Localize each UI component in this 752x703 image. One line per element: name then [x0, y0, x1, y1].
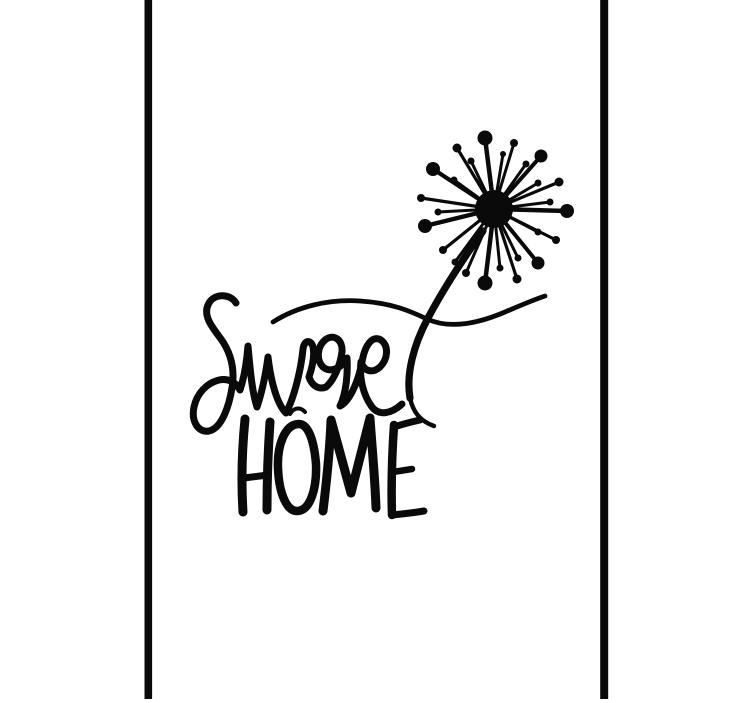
dandelion-seed-dot — [560, 204, 574, 218]
dandelion-flower-icon — [409, 131, 574, 427]
dandelion-seed-dot — [417, 194, 425, 202]
dandelion-core — [475, 190, 513, 228]
dandelion-seed-dot — [435, 209, 442, 216]
letter-h-left-stroke — [242, 419, 245, 512]
dandelion-seed-dot — [552, 236, 560, 244]
sweet-script-lettering — [193, 296, 402, 431]
dandelion-seed-dot — [532, 257, 545, 270]
dandelion-seed-dot — [500, 151, 506, 157]
letter-o-accent-mark — [290, 408, 305, 414]
letter-o-stroke — [278, 424, 316, 511]
letter-e-middle-arm — [393, 469, 412, 472]
dandelion-seed-dot — [555, 178, 564, 187]
dandelion-seed-dot — [453, 144, 462, 153]
poster-canvas: sweet HOME — [0, 0, 752, 703]
right-border-line — [600, 0, 608, 699]
dandelion-seed-dot — [523, 161, 530, 168]
dandelion-seed-dot — [515, 255, 522, 262]
dandelion-seed-dot — [426, 162, 440, 176]
dandelion-seed-dot — [451, 177, 458, 184]
sweet-word-path — [193, 296, 402, 431]
letter-h-right-stroke — [267, 422, 270, 510]
dandelion-seed-dot — [513, 275, 522, 284]
dandelion-seed-dot — [510, 139, 518, 147]
dandelion-seed-dot — [535, 229, 542, 236]
dandelion-seed-dot — [535, 150, 548, 163]
dandelion-seed-dot — [535, 180, 542, 187]
letter-m-stroke — [323, 418, 376, 511]
left-border-line — [145, 0, 153, 699]
dandelion-seed-dot — [468, 158, 475, 165]
dandelion-seed-dot — [462, 269, 470, 277]
letter-h-crossbar — [244, 475, 268, 478]
dandelion-seed-dot — [478, 276, 493, 291]
letter-e-top-arm — [394, 420, 420, 427]
poster-graphic — [0, 0, 752, 703]
dandelion-seed-dot — [439, 246, 447, 254]
home-lettering — [242, 408, 424, 515]
dandelion-seed-dot — [547, 199, 554, 206]
t-crossbar-flourish — [273, 296, 545, 324]
dandelion-seed-dot — [452, 259, 459, 266]
dandelion-seed-dot — [478, 131, 493, 146]
letter-e-bottom-arm — [392, 511, 424, 515]
dandelion-seed-dot — [497, 265, 504, 272]
dandelion-seed-dot — [418, 219, 432, 233]
